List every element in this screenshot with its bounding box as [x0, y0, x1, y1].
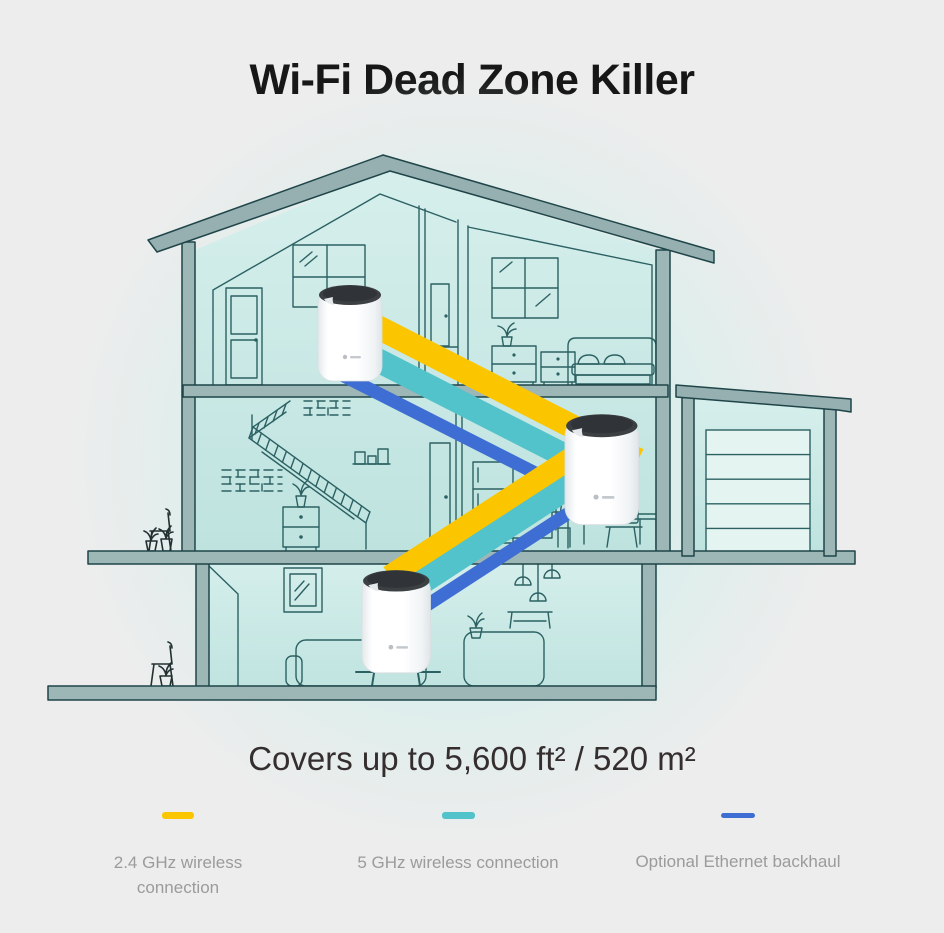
legend-item-5ghz: 5 GHz wireless connection [328, 812, 588, 876]
deco-unit-attic [318, 285, 382, 381]
legend-item-24ghz: 2.4 GHz wireless connection [48, 812, 308, 900]
legend-item-ethernet: Optional Ethernet backhaul [608, 812, 868, 875]
legend-label-ethernet: Optional Ethernet backhaul [633, 850, 843, 875]
garage-door [706, 430, 810, 553]
legend-label-5ghz: 5 GHz wireless connection [353, 851, 563, 876]
tp-link-logo-icon [389, 645, 394, 650]
tp-link-logo-icon [594, 495, 599, 500]
legend-label-24ghz: 2.4 GHz wireless connection [73, 851, 283, 900]
legend-dash-ethernet [721, 813, 755, 818]
legend-dash-5ghz [442, 812, 475, 819]
deco-unit-middle [565, 414, 639, 524]
coverage-caption: Covers up to 5,600 ft² / 520 m² [0, 740, 944, 778]
legend-dash-24ghz [162, 812, 194, 819]
deco-unit-living-room [362, 570, 430, 673]
house-diagram [0, 0, 944, 933]
tp-link-logo-icon [343, 355, 347, 359]
marketing-banner: Wi-Fi Dead Zone Killer [0, 0, 944, 933]
